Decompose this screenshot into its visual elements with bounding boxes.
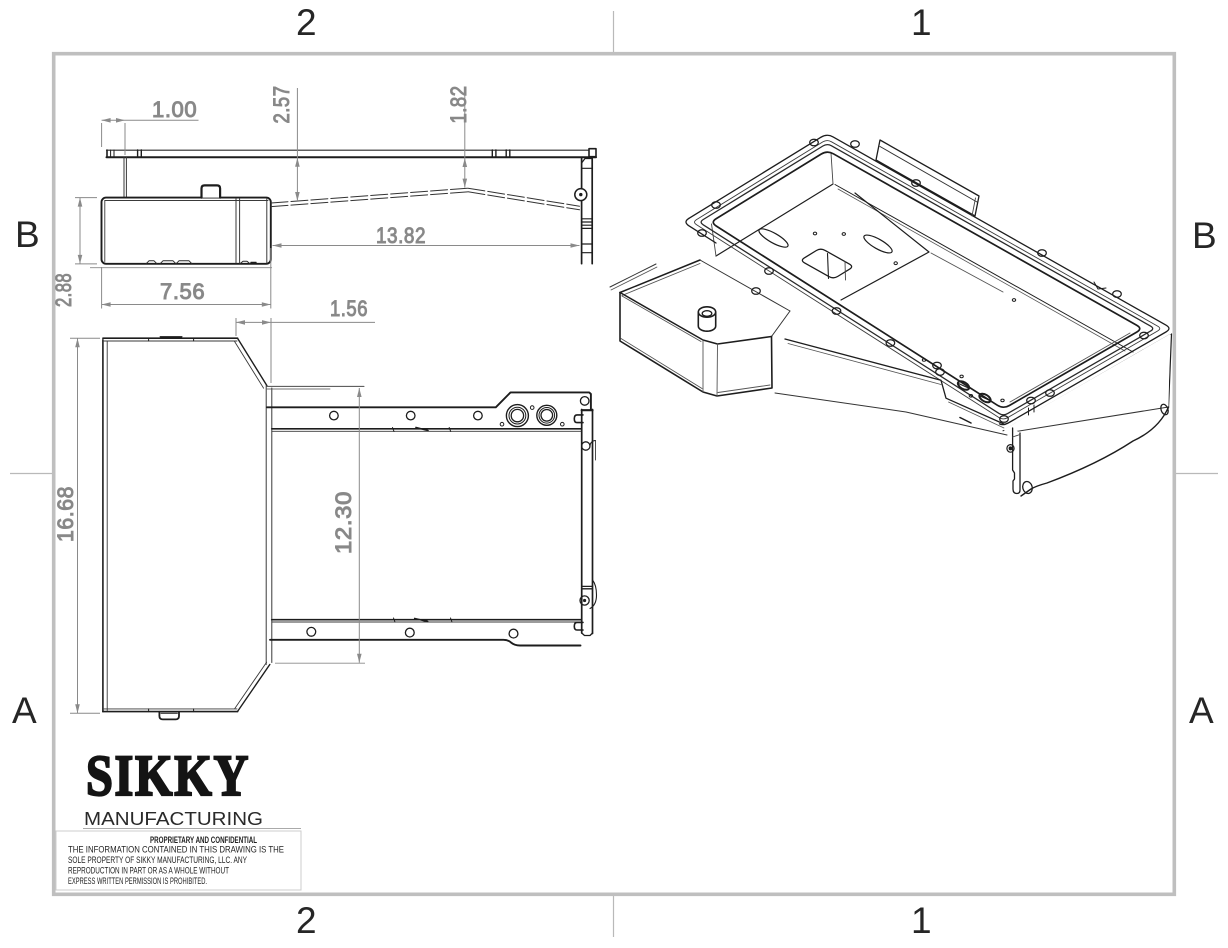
svg-text:A: A xyxy=(1189,690,1214,731)
svg-text:2.57: 2.57 xyxy=(269,86,294,124)
svg-text:1: 1 xyxy=(911,900,932,941)
svg-text:PROPRIETARY AND CONFIDENTIAL: PROPRIETARY AND CONFIDENTIAL xyxy=(150,835,257,845)
svg-text:1.00: 1.00 xyxy=(152,97,197,122)
svg-text:SIKKY: SIKKY xyxy=(86,743,250,808)
svg-text:THE INFORMATION CONTAINED IN T: THE INFORMATION CONTAINED IN THIS DRAWIN… xyxy=(68,845,284,855)
svg-text:2: 2 xyxy=(296,2,317,43)
svg-text:7.56: 7.56 xyxy=(160,279,205,304)
svg-text:12.30: 12.30 xyxy=(331,491,356,554)
svg-text:16.68: 16.68 xyxy=(53,486,78,542)
svg-text:MANUFACTURING: MANUFACTURING xyxy=(84,808,263,829)
svg-text:REPRODUCTION IN PART OR AS A W: REPRODUCTION IN PART OR AS A WHOLE WITHO… xyxy=(68,866,229,876)
svg-text:EXPRESS WRITTEN PERMISSION IS: EXPRESS WRITTEN PERMISSION IS PROHIBITED… xyxy=(68,876,207,886)
svg-text:2.88: 2.88 xyxy=(51,273,76,307)
svg-text:A: A xyxy=(12,690,37,731)
svg-text:SOLE PROPERTY OF SIKKY MANUFAC: SOLE PROPERTY OF SIKKY MANUFACTURING, LL… xyxy=(68,855,247,865)
svg-text:2: 2 xyxy=(296,900,317,941)
svg-text:1: 1 xyxy=(911,2,932,43)
svg-text:13.82: 13.82 xyxy=(376,223,426,248)
svg-text:B: B xyxy=(15,214,40,255)
svg-text:1.82: 1.82 xyxy=(446,86,471,124)
svg-text:B: B xyxy=(1192,215,1217,256)
svg-text:1.56: 1.56 xyxy=(330,296,368,321)
